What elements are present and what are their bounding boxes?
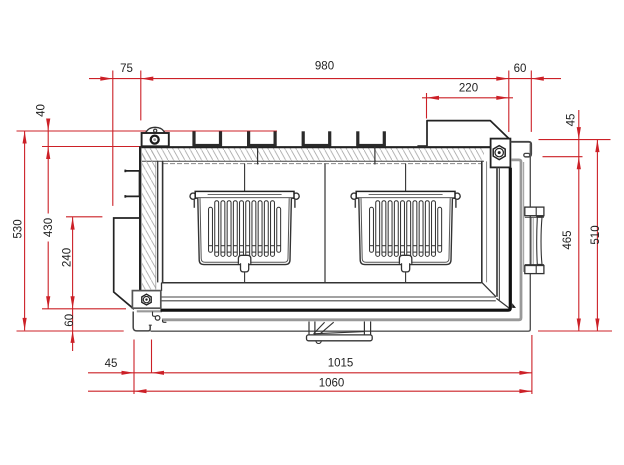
svg-text:40: 40: [36, 104, 48, 117]
svg-text:1060: 1060: [319, 378, 345, 390]
svg-text:510: 510: [590, 225, 602, 244]
svg-text:220: 220: [459, 83, 478, 95]
svg-text:240: 240: [62, 248, 74, 267]
svg-text:980: 980: [315, 61, 334, 73]
svg-text:75: 75: [120, 63, 133, 75]
svg-text:60: 60: [514, 63, 527, 75]
svg-text:45: 45: [565, 114, 577, 127]
svg-text:430: 430: [43, 218, 55, 237]
svg-text:60: 60: [64, 314, 76, 327]
svg-text:45: 45: [105, 358, 118, 370]
svg-text:465: 465: [562, 230, 574, 249]
svg-text:530: 530: [13, 219, 25, 238]
svg-text:1015: 1015: [328, 358, 354, 370]
